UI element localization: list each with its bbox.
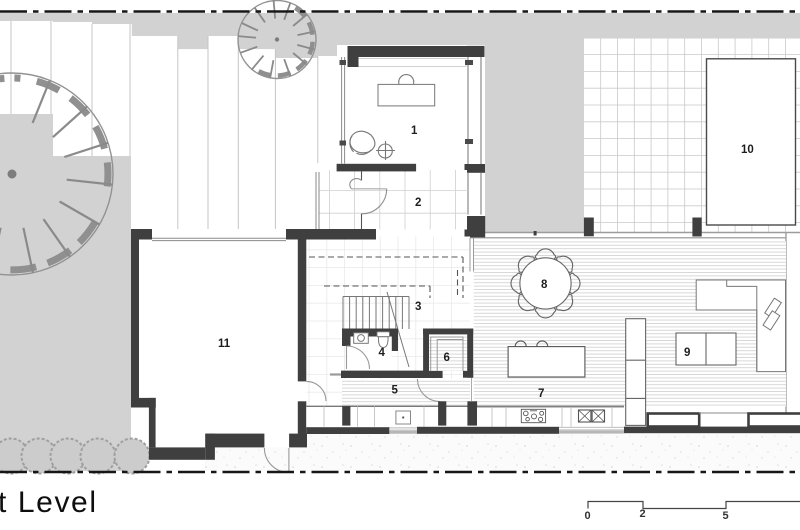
- svg-text:9: 9: [684, 347, 690, 359]
- svg-text:0: 0: [585, 510, 591, 522]
- svg-text:3: 3: [415, 301, 421, 313]
- svg-text:8: 8: [541, 279, 548, 291]
- svg-text:2: 2: [640, 508, 646, 520]
- svg-text:t Level: t Level: [0, 486, 98, 519]
- svg-text:11: 11: [218, 338, 231, 350]
- svg-text:7: 7: [538, 388, 544, 400]
- svg-text:5: 5: [392, 385, 399, 397]
- svg-text:6: 6: [444, 352, 450, 364]
- svg-text:4: 4: [379, 347, 386, 359]
- svg-text:1: 1: [411, 125, 418, 137]
- svg-text:2: 2: [415, 197, 421, 209]
- svg-text:10: 10: [741, 144, 754, 156]
- svg-text:5: 5: [723, 510, 729, 522]
